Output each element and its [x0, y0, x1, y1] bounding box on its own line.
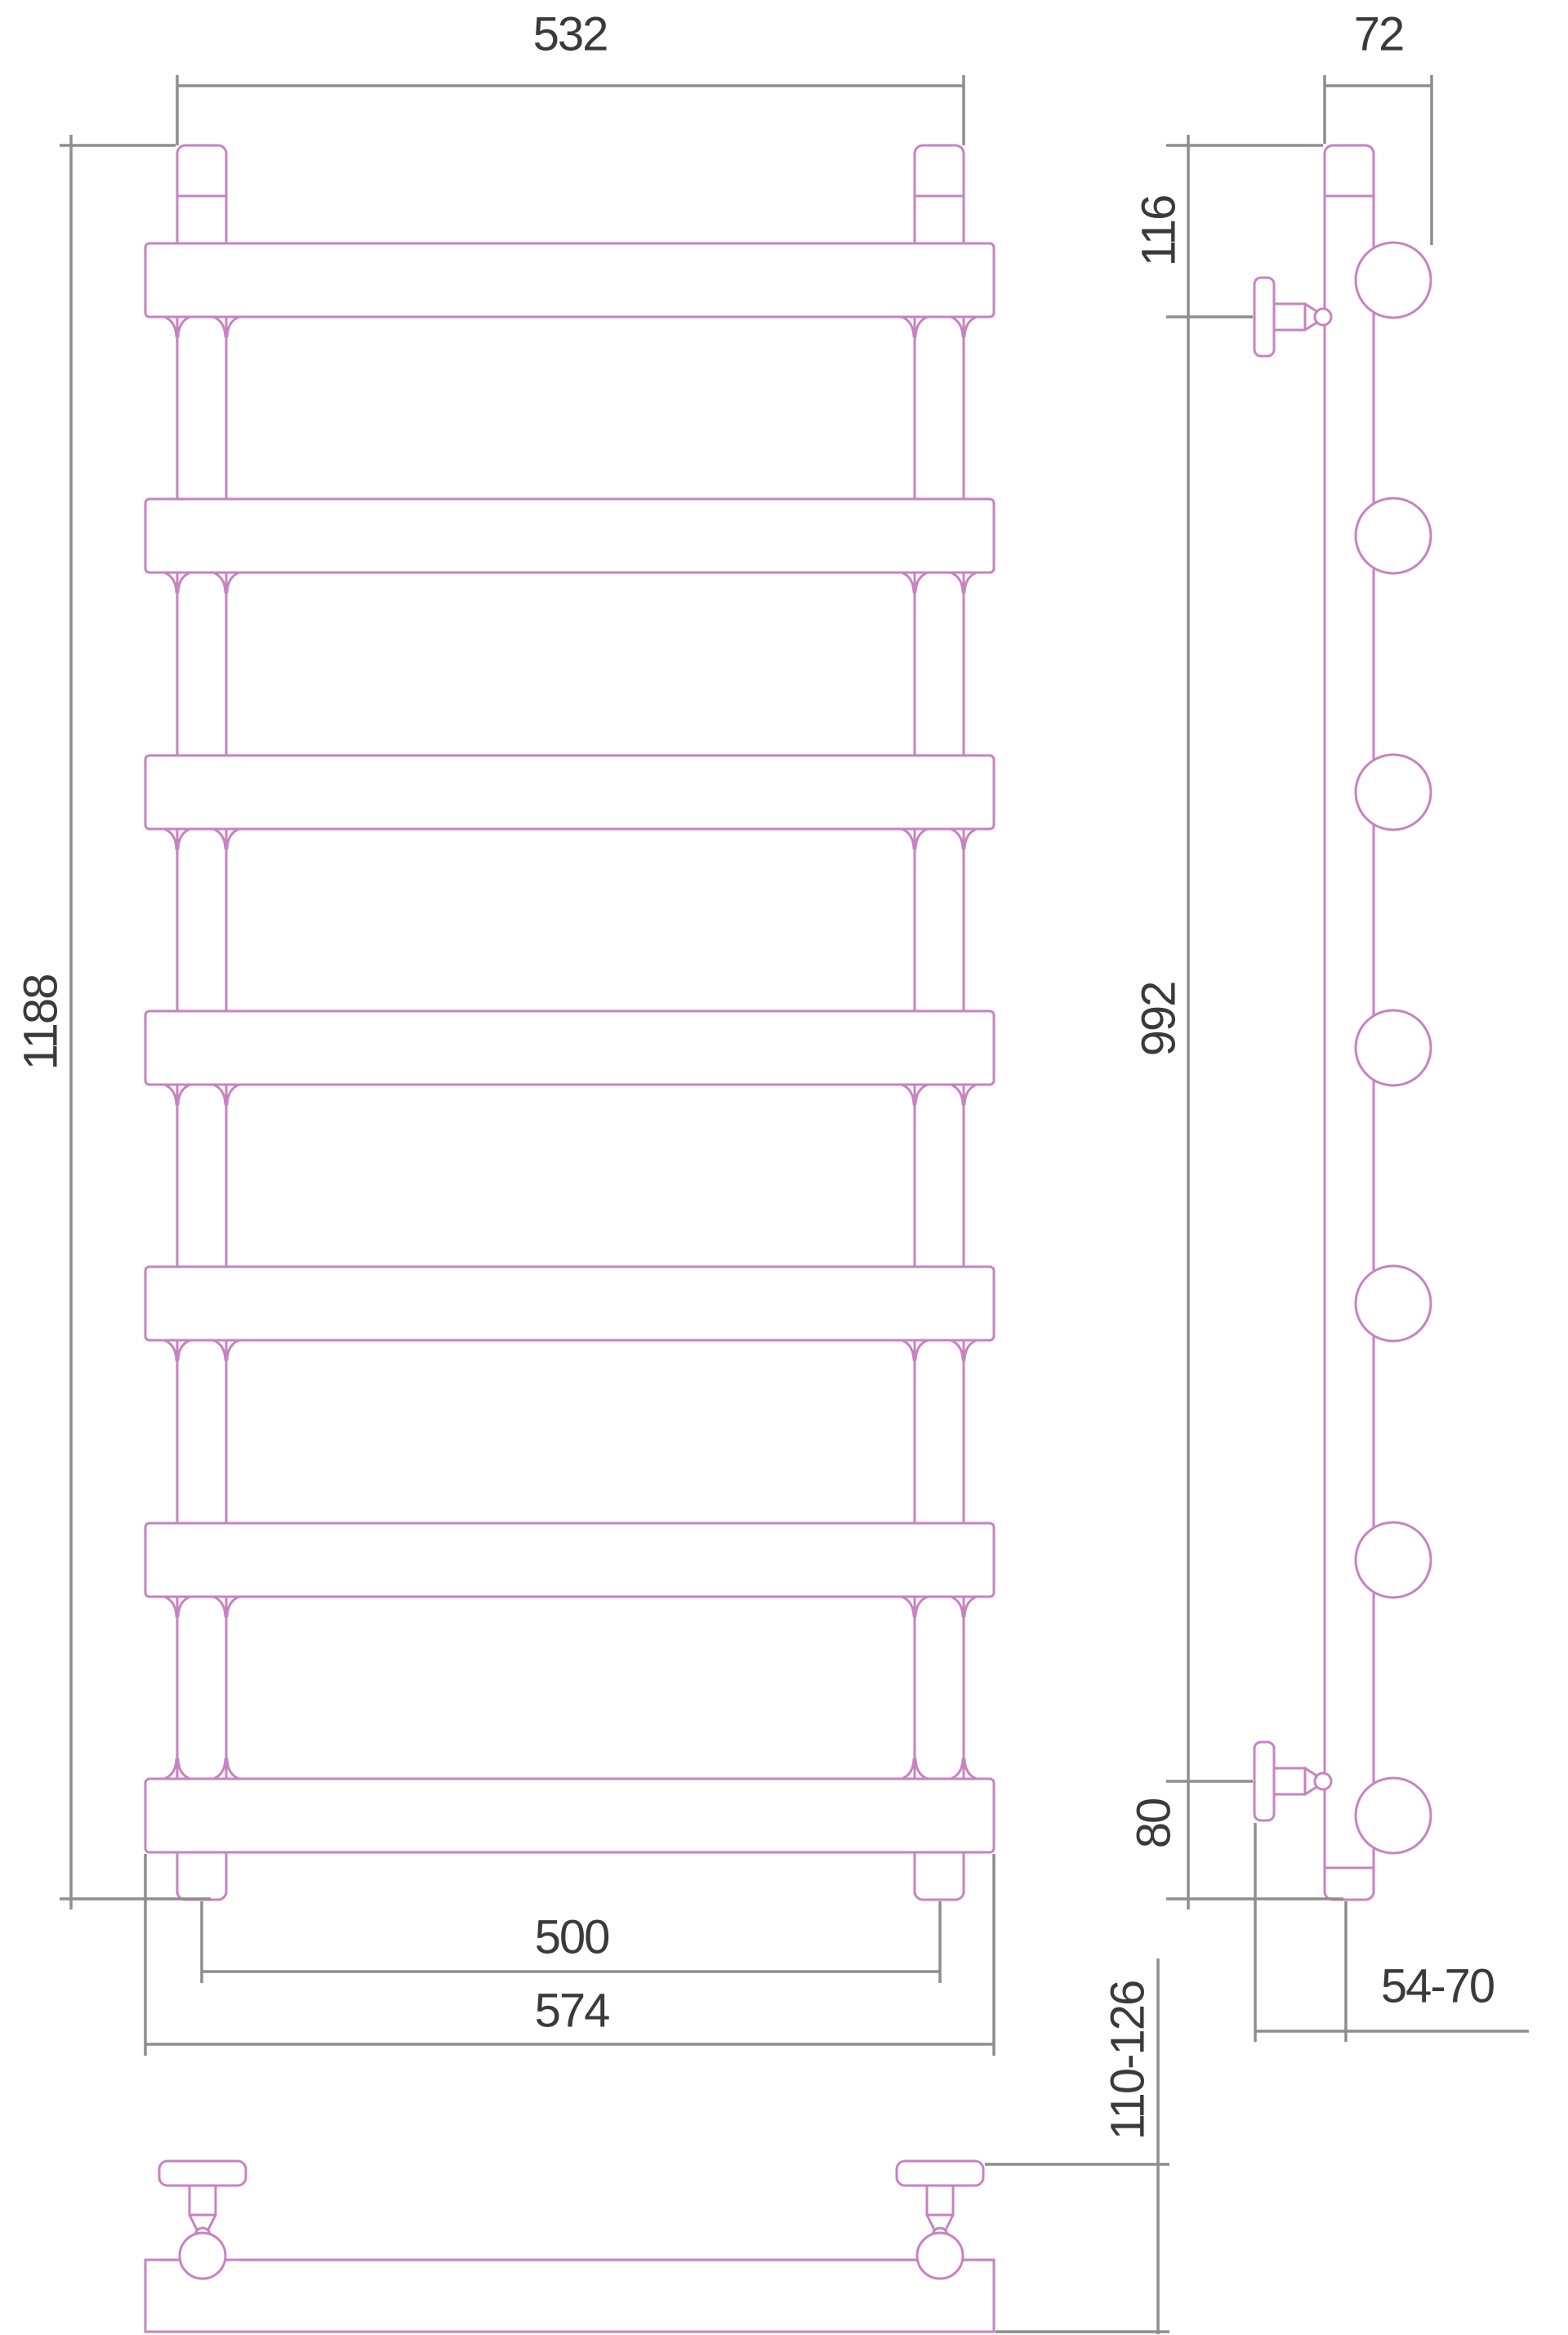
dimension-lines	[60, 75, 1529, 2334]
dim-label-bar-length: 574	[535, 1985, 610, 2038]
front-horizontal-bars	[145, 243, 994, 1852]
front-view	[145, 145, 994, 1900]
bar-2	[145, 499, 994, 573]
dim-label-bracket-span: 992	[1133, 983, 1186, 1057]
bar-5	[145, 1267, 994, 1340]
bar-4	[145, 1011, 994, 1085]
towel-rail-technical-drawing: 532 72 1188 116 992 80 110-126 500 574 5…	[0, 0, 1568, 2335]
drawing-page: 532 72 1188 116 992 80 110-126 500 574 5…	[0, 0, 1568, 2335]
dim-label-top-to-bracket: 116	[1133, 196, 1186, 266]
dim-label-wall-to-front: 110-126	[1102, 1981, 1155, 2141]
bar-6	[145, 1523, 994, 1597]
dim-label-overall-height: 1188	[15, 975, 68, 1071]
dim-label-mount-width: 500	[535, 1911, 609, 1964]
bar-3	[145, 755, 994, 829]
bar-7	[145, 1779, 994, 1852]
dim-label-overall-width: 532	[533, 8, 608, 61]
dim-label-bracket-to-bottom: 80	[1128, 1799, 1181, 1849]
bar-1	[145, 243, 994, 317]
side-wall-brackets	[1254, 278, 1331, 1820]
dim-label-depth: 72	[1354, 8, 1404, 61]
dim-label-wall-to-rail: 54-70	[1381, 1960, 1494, 2013]
bottom-bar-profile	[145, 2260, 994, 2332]
bottom-view	[145, 2161, 994, 2332]
side-view	[1254, 145, 1431, 1900]
